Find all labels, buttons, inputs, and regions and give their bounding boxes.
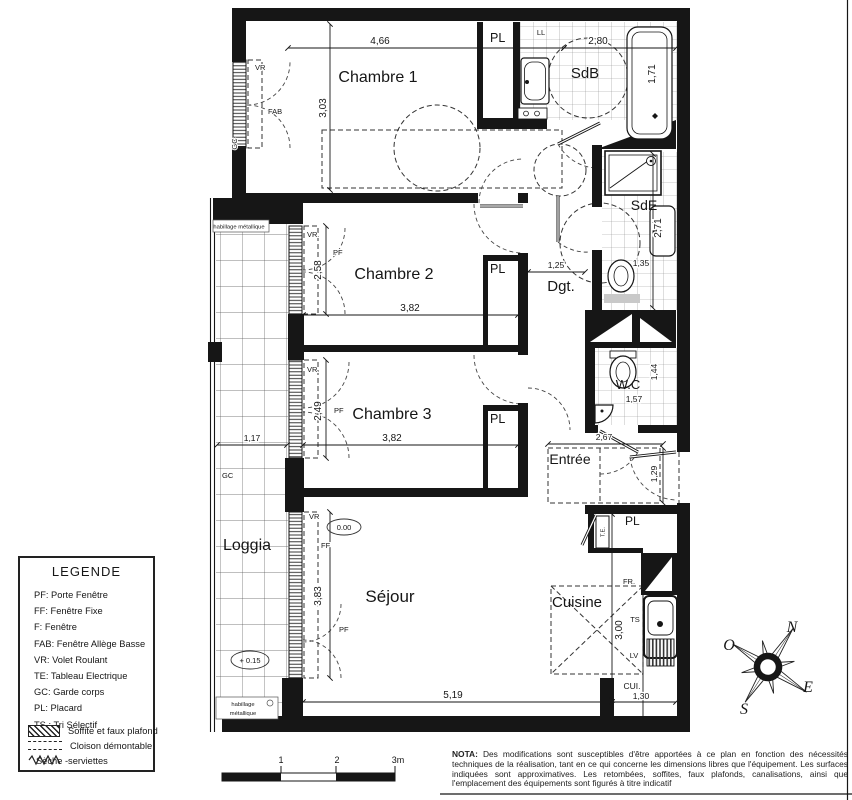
nota-block: NOTA: Des modifications sont susceptible… [452,750,848,789]
dim-sdb-height: 1,71 [647,64,658,84]
tag-ff-sejour: FF [321,541,331,550]
dim-loggia-width: 1,17 [244,433,261,443]
dim-entree-door: 1,29 [649,465,659,482]
dim-chambre1-width: 4,66 [370,36,390,47]
dim-cuisine-width: 1,30 [633,691,650,701]
kitchen-sink-bowl [648,601,673,635]
tag-cui: CUI. [624,681,641,691]
dim-wc-width: 1,57 [626,394,643,404]
room-label-dgt: Dgt. [547,278,575,295]
tag-pl-chambre2: PL [490,262,505,276]
room-label-entree: Entrée [549,451,590,467]
room-label-sdb: SdB [571,65,599,82]
tag-pf-sejour: PF [339,625,349,634]
legend-swatch-soffit-label: Soffite et faux plafond [68,726,158,736]
dim-chambre2-height: 2,58 [313,260,324,280]
tag-fab: FAB [268,107,282,116]
tag-lv: LV [630,651,639,660]
room-label-sde: SdE [631,197,657,213]
tag-vr-chambre1: VR [255,63,266,72]
cladding-label-top: habillage métallique [213,225,264,231]
soffit-chambre1 [322,130,562,188]
dim-entree-width: 2,67 [596,432,613,442]
legend-item-vr: VR: Volet Roulant [34,652,153,668]
dim-chambre2-width: 3,82 [400,303,420,314]
hatch-swatch-icon [28,725,60,737]
legend-item-f: F: Fenêtre [34,619,153,635]
cladding-label-bottom-2: métallique [230,711,256,717]
legend-item-pf: PF: Porte Fenêtre [34,587,153,603]
room-label-chambre2: Chambre 2 [354,266,433,283]
room-label-sejour: Séjour [365,587,414,606]
cladding-label-bottom-1: habillage [231,702,254,708]
legend-item-fab: FAB: Fenêtre Allège Basse [34,636,153,652]
tag-pl-top: PL [490,31,505,45]
loggia-railing [211,198,215,732]
tag-vr-chambre3: VR [307,365,318,374]
scale-tick-2: 2 [334,755,339,765]
dim-chambre3-height: 2,49 [313,401,324,421]
floorplan-page: habillage métallique habillage métalliqu… [0,0,852,800]
tiled-floors [216,22,677,716]
dim-chambre3-width: 3,82 [382,433,402,444]
scale-tick-1: 1 [278,755,283,765]
tag-gc-loggia: GC [222,471,234,480]
dim-cuisine-height: 3,00 [614,620,625,640]
tag-vr-chambre2: VR [307,230,318,239]
legend-item-pl: PL: Placard [34,700,153,716]
room-label-loggia: Loggia [223,537,271,554]
furniture-circle-chambre1 [394,105,480,191]
compass-rose: N O E S [710,606,832,728]
legend-item-te: TE: Tableau Electrique [34,668,153,684]
tag-fr: FR. [623,577,635,586]
legend-box: LEGENDE PF: Porte Fenêtre FF: Fenêtre Fi… [18,556,155,772]
scale-tick-3: 3m [392,755,405,765]
level-sejour: 0.00 [337,523,352,532]
dim-wc-height: 1,44 [649,363,659,380]
tag-pl-chambre3: PL [490,412,505,426]
compass-north: N [786,619,799,636]
nota-title: NOTA: [452,749,478,759]
room-label-cuisine: Cuisine [552,594,602,611]
dim-chambre1-height: 3,03 [318,98,329,118]
tag-ll: LL [537,28,545,37]
compass-east: E [802,679,813,696]
nota-body: Des modifications sont susceptibles d'êt… [452,749,848,788]
dim-sde-sink: 1,35 [633,258,650,268]
room-label-chambre1: Chambre 1 [338,69,417,86]
scale-bar: 1 2 3m [222,755,404,781]
tag-vr-sejour: VR [309,512,320,521]
tag-pf-chambre3: PF [334,406,344,415]
legend-item-gc: GC: Garde corps [34,684,153,700]
room-label-chambre3: Chambre 3 [352,406,431,423]
dim-sde-height: 2,71 [653,218,664,238]
dim-sejour-width: 5,19 [443,690,463,701]
tag-te: T.E. [601,527,607,537]
dim-sejour-height: 3,83 [313,586,324,606]
tag-pl-cuisine: PL [625,514,640,528]
room-label-wc: W.C [616,377,641,392]
legend-items: PF: Porte Fenêtre FF: Fenêtre Fixe F: Fe… [34,587,153,733]
compass-south: S [740,701,748,718]
legend-item-ff: FF: Fenêtre Fixe [34,603,153,619]
dim-dgt-width: 1,25 [548,260,565,270]
legend-swatch-partition-label: Cloison démontable [70,741,152,751]
zigzag-swatch-icon [28,754,62,766]
tag-pf-chambre2: PF [333,248,343,257]
level-loggia: + 0.15 [239,656,260,665]
legend-swatch-partition: Cloison démontable [28,739,152,752]
legend-swatch-soffit: Soffite et faux plafond [28,724,158,737]
legend-title: LEGENDE [20,564,153,579]
tag-gc-chambre1: GC [230,138,239,150]
dim-sdb-width: 2,80 [588,36,608,47]
compass-west: O [723,637,735,654]
dashed-swatch-icon [28,741,62,750]
tag-ts: TS [630,615,640,624]
legend-swatch-towel: Sèche -serviettes [28,754,108,767]
dishwasher [647,639,674,666]
washing-machine [518,108,547,119]
